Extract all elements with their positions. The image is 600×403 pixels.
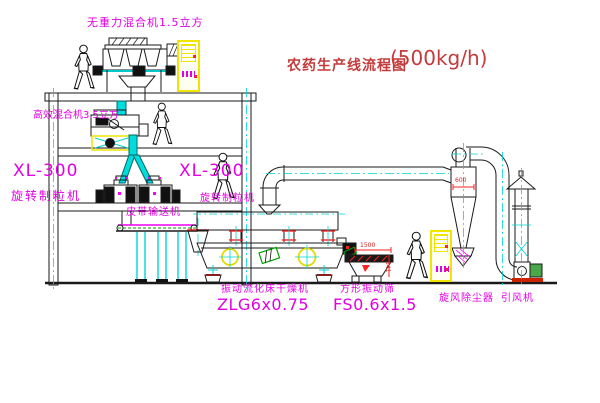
cyclone-centerlines xyxy=(452,143,503,286)
granulator-left xyxy=(96,176,137,203)
dryer-model-label: ZLG6x0.75 xyxy=(217,297,309,313)
dryer-name-label: 振动流化床干燥机 xyxy=(221,285,309,295)
building-top-slab xyxy=(45,93,256,101)
control-cabinet-ground xyxy=(430,230,452,282)
dryer-feed-hopper xyxy=(187,218,209,256)
granulator-left-name-label: 旋转制粒机 xyxy=(11,190,81,202)
fluid-bed-dryer xyxy=(193,212,357,282)
granulator-right-name-label: 旋转制粒机 xyxy=(200,194,255,204)
cyclone-inlet-dimension: 600 xyxy=(455,178,466,184)
cabinet-indicator-light xyxy=(193,55,196,58)
top-mixer-machine xyxy=(93,38,180,101)
mid-mixer-label: 高效混合机3.5立方 xyxy=(33,111,119,121)
sieve-name-label: 方形振动筛 xyxy=(340,285,395,295)
belt-conveyor-label: 皮带输送机 xyxy=(126,208,181,218)
cyclone-machine xyxy=(451,143,517,286)
vibration-motor-right xyxy=(295,245,319,269)
exhaust-duct xyxy=(259,165,451,214)
cabinet-label-scribble xyxy=(436,266,449,272)
cabinet-indicator-light xyxy=(445,245,448,248)
building-right-column xyxy=(242,93,251,285)
cyclone-label: 旋风除尘器 xyxy=(439,294,494,304)
granulator-right-model-label: XL-300 xyxy=(179,163,244,180)
flow-diagram-canvas: 无重力混合机1.5立方 农药生产线流程图 (500kg/h) 高效混合机3.5立… xyxy=(0,0,600,403)
mid-mixer-machine xyxy=(91,101,148,150)
top-mixer-label: 无重力混合机1.5立方 xyxy=(87,17,204,28)
sieve-model-label: FS0.6x1.5 xyxy=(333,297,417,313)
sieve-length-dimension: 1500 xyxy=(360,243,375,249)
worker-ground xyxy=(406,232,428,278)
fan-machine xyxy=(512,262,543,282)
dryer-green-plate xyxy=(259,247,280,263)
worker-level2 xyxy=(153,103,173,145)
sieve-height-dimension: 341 xyxy=(384,261,390,272)
belt-conveyor-machine xyxy=(116,225,198,282)
cabinet-label-scribble xyxy=(182,71,195,77)
cabinet-vent xyxy=(434,234,448,252)
vibration-motor-left xyxy=(219,246,241,268)
fan-base xyxy=(512,278,543,282)
base-pulley xyxy=(106,139,115,148)
control-cabinet-roof xyxy=(177,40,200,92)
diagram-title: 农药生产线流程图 xyxy=(287,55,407,75)
cabinet-vent xyxy=(181,44,196,62)
building-frame xyxy=(45,88,557,290)
fan-motor xyxy=(530,264,542,277)
building-mid-slab xyxy=(58,148,242,156)
conveyor-legs xyxy=(137,232,186,281)
worker-roof xyxy=(74,45,95,89)
granulator-left-model-label: XL-300 xyxy=(13,163,78,180)
fan-label: 引风机 xyxy=(501,294,534,304)
diagram-capacity: (500kg/h) xyxy=(390,46,487,70)
